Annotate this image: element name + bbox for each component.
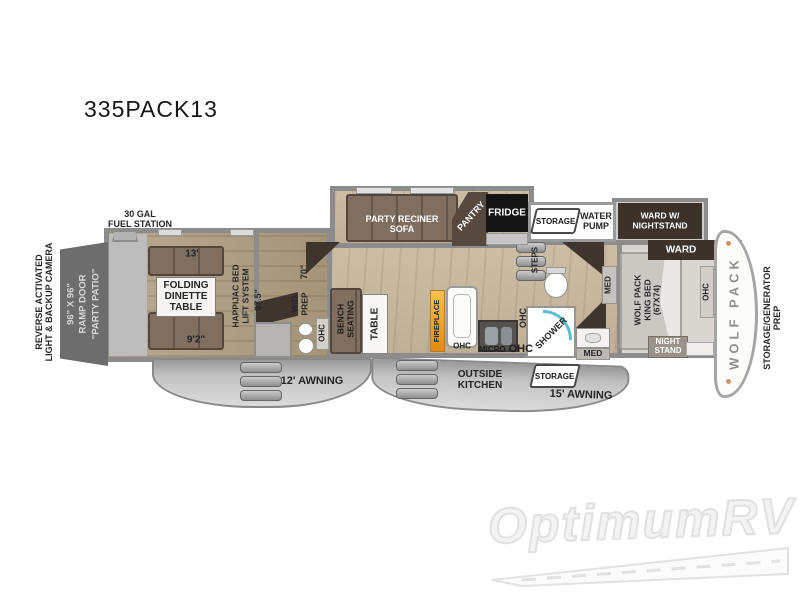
fuel-station-label: 30 GAL FUEL STATION	[108, 209, 172, 229]
kitchen-ohc-label: OHC	[509, 343, 533, 355]
king-bed-label: WOLF PACK KING BED (67X74)	[634, 250, 663, 350]
wall-ohc-label: OHC	[518, 308, 528, 328]
storage-front-box: STORAGE	[529, 364, 581, 388]
med-lower-label: MED	[584, 349, 603, 359]
fireplace-label: FIREPLACE	[433, 300, 441, 343]
bed-lift-label: HAPPIJAC BED LIFT SYSTEM	[231, 250, 250, 342]
storage-rear-label: STORAGE	[536, 217, 575, 226]
step	[240, 390, 282, 401]
window	[410, 187, 454, 194]
fireplace-ohc-label: OHC	[453, 343, 471, 352]
toilet-tank	[546, 267, 566, 274]
wd-prep-label: W/D PREP	[290, 292, 309, 315]
table-label: TABLE	[369, 308, 380, 341]
watermark-road-graphic	[488, 542, 793, 588]
step	[396, 374, 438, 385]
rear-camera-label: REVERSE ACTIVATED LIGHT & BACKUP CAMERA	[34, 216, 54, 388]
bedroom-step	[686, 342, 714, 356]
toilet	[544, 272, 568, 298]
window	[356, 187, 392, 194]
window	[158, 229, 182, 236]
fuel-station-door	[112, 230, 138, 242]
ramp-interior-floor	[109, 234, 147, 356]
counter	[486, 233, 528, 245]
step	[240, 362, 282, 373]
closet-dim: 70"	[299, 265, 309, 279]
step	[240, 376, 282, 387]
ward-slide-label: WARD W/ NIGHTSTAND	[632, 211, 687, 230]
step	[396, 360, 438, 371]
sofa-label: PARTY RECINER SOFA	[366, 214, 439, 234]
half-bath-toilet	[298, 338, 314, 354]
ramp-door-label: 96" X 96" RAMP DOOR "PARTY PATIO"	[65, 245, 102, 363]
half-bath-ohc-label: OHC	[319, 324, 328, 342]
bed-blanket-fold	[660, 254, 680, 348]
garage-rear-width-dim: 9'2"	[187, 334, 205, 345]
closet	[254, 322, 292, 358]
half-bath-sink	[298, 323, 313, 336]
marker-light	[726, 379, 731, 384]
model-title: 335PACK13	[84, 96, 218, 123]
micro-ohc-row: MICRO OHC	[476, 342, 536, 356]
entry-steps	[396, 360, 438, 400]
dinette-label: FOLDING DINETTE TABLE	[164, 280, 209, 314]
outside-kitchen-label: OUTSIDE KITCHEN	[458, 369, 502, 391]
night-stand-label: NIGHT STAND	[655, 338, 682, 356]
bedroom-ohc-label: OHC	[703, 283, 712, 301]
water-pump-label: WATER PUMP	[580, 211, 612, 231]
garage-length-dim: 13'	[185, 248, 199, 259]
storage-rear-box: STORAGE	[530, 208, 581, 234]
entertainment-center	[446, 286, 478, 348]
optimumrv-watermark: OptimumRV	[488, 492, 793, 587]
window	[230, 229, 254, 236]
entry-steps	[240, 362, 282, 402]
med-upper-label: MED	[605, 276, 614, 294]
bench-seating-label: BENCH SEATING	[336, 300, 355, 337]
storage-front-label: STORAGE	[535, 372, 574, 381]
vanity-sink	[576, 328, 610, 348]
vanity-bowl	[585, 333, 601, 343]
entertainment-inset	[453, 294, 471, 338]
front-cap-label: WOLF PACK	[728, 227, 743, 399]
step	[396, 388, 438, 399]
micro-label: MICRO	[479, 345, 506, 354]
awning-right-label: 15' AWNING	[549, 388, 612, 402]
garage-height-dim: 97.5"	[253, 289, 263, 311]
marker-light	[726, 241, 731, 246]
floorplan-canvas: 335PACK13 REVERSE ACTIVATED LIGHT & BACK…	[0, 0, 800, 600]
awning-left-label: 12' AWNING	[281, 375, 344, 387]
fridge-label: FRIDGE	[488, 207, 526, 218]
generator-prep-label: STORAGE/GENERATOR PREP	[762, 242, 782, 394]
ward-label: WARD	[666, 244, 697, 255]
steps-label: STEPS	[532, 247, 541, 273]
